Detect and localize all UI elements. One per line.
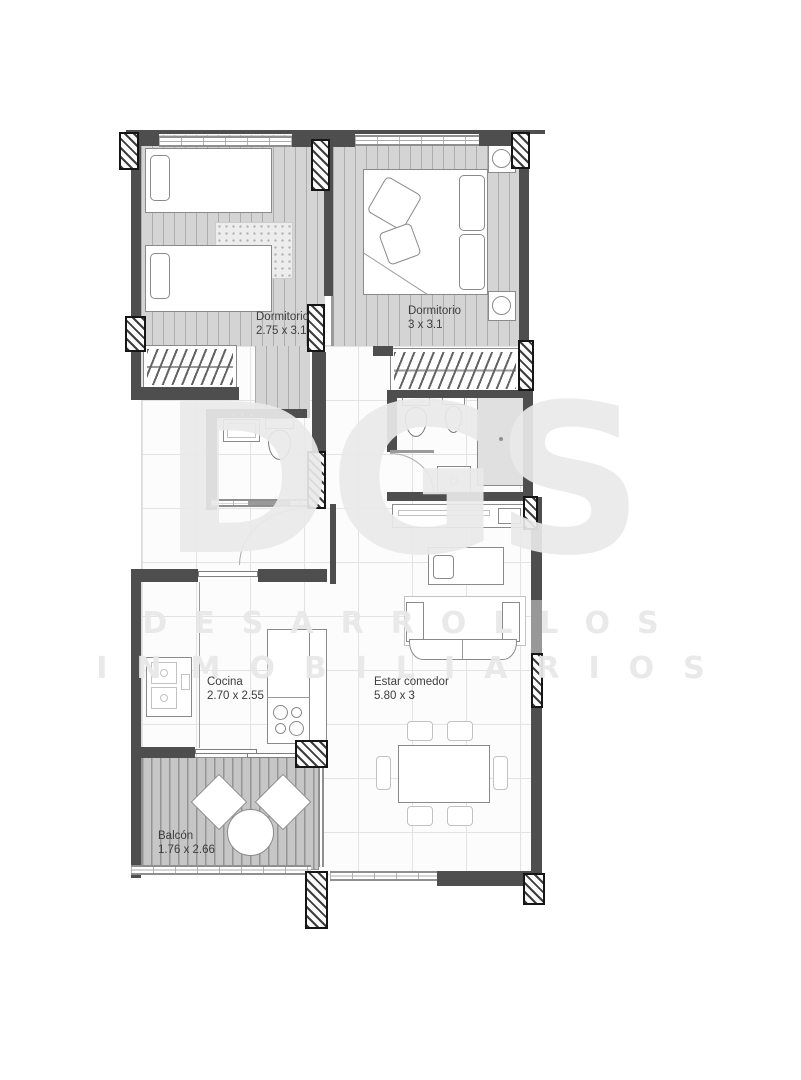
sofa-seat [409,639,517,660]
counter-divider-line [267,697,310,698]
column [523,873,545,905]
kitchen-faucet [181,674,190,690]
toilet-tank [265,418,294,429]
room-dimensions: 3 x 3.1 [408,318,461,332]
closet-hanging-clothes [147,349,233,385]
room-label-living: Estar comedor 5.80 x 3 [374,675,449,703]
window-bedroom-2 [355,135,479,146]
wall-hall-stub [330,504,336,584]
faucet-dots [229,412,255,418]
room-name: Cocina [207,675,264,689]
dining-chair [447,721,473,741]
column [518,340,534,391]
wall-bathroom-2-top [387,390,523,398]
room-label-balcony: Balcón 1.76 x 2.66 [158,829,215,857]
column [307,304,325,352]
sofa-armrest [502,602,520,642]
room-dimensions: 1.76 x 2.66 [158,843,215,857]
closet-bedroom-1 [143,345,237,389]
sliding-door-panel-2 [247,753,297,758]
dining-chair [376,756,391,790]
entry-door-segment [531,600,542,655]
shower-stall [477,397,525,486]
sink-drain [160,669,168,677]
room-label-bedroom-2: Dormitorio 3 x 3.1 [408,304,461,332]
balcony-railing [131,865,311,875]
wall-left-balcony [131,747,141,878]
sink-basin [227,423,256,438]
cabinet-shelf-line [398,510,490,516]
pillow [459,175,485,231]
dining-chair [407,721,433,741]
dining-chair [493,756,508,790]
room-dimensions: 2.75 x 3.1 [256,324,309,338]
wall-bottom-thick [437,871,532,886]
pillow [459,234,485,290]
column [531,653,543,708]
column [511,132,530,169]
wall-closet-bottom [131,387,239,400]
room-label-bedroom-1: Dormitorio 2.75 x 3.1 [256,310,309,338]
closet-bedroom-2 [390,348,520,393]
column [305,871,328,929]
sink-drain [160,694,168,702]
dining-chair [407,806,433,826]
column [523,496,538,530]
wall-balcony-divider-a [141,747,195,758]
closet-hanging-clothes [394,352,516,389]
balcony-living-glass [318,763,324,867]
wall-bathroom-1-left [206,409,217,510]
room-name: Dormitorio [408,304,461,318]
column [307,451,326,509]
lamp [492,149,511,168]
wall-corridor-nub [373,346,393,356]
balcony-round-table [227,809,274,856]
dining-table [398,745,490,803]
bedroom-1-nook-floor [255,346,310,418]
shower-bench [248,501,290,505]
dining-chair [447,806,473,826]
room-dimensions: 2.70 x 2.55 [207,689,264,703]
room-name: Dormitorio [256,310,309,324]
wall-kitchen-top-b [258,569,327,582]
wall-bathroom-2-bottom [387,492,531,501]
shower-drain [499,437,503,441]
cabinet-box [498,508,521,524]
column [119,132,139,170]
window-bedroom-1 [159,136,292,147]
pillow [150,155,170,201]
door-leaf-kitchen [198,571,258,577]
sofa-seat-divider [462,640,463,659]
room-dimensions: 5.80 x 3 [374,689,449,703]
room-name: Balcón [158,829,215,843]
wall-left-kitchen [131,569,141,759]
desk-chair [433,555,454,579]
wall-bathroom-2-left [387,392,397,452]
room-label-kitchen: Cocina 2.70 x 2.55 [207,675,264,703]
floor-plan-image: Dormitorio 2.75 x 3.1 Dormitorio 3 x 3.1… [0,0,801,1080]
wall-right-bathroom-2 [523,390,533,497]
wall-bathroom-1-top [206,409,307,418]
window-bottom-living [330,871,437,881]
room-name: Estar comedor [374,675,449,689]
lamp [492,296,511,315]
kitchen-counter-edge [199,582,200,748]
column [311,139,330,191]
column [125,316,146,352]
sofa-armrest [406,602,424,642]
wall-divider-lower [312,352,326,452]
stove-burner [275,723,286,734]
door-leaf-bedroom-2 [331,296,334,346]
wall-kitchen-top-a [131,569,198,582]
pillow [150,253,170,299]
column [295,740,328,768]
stove-burner [289,721,304,736]
stove-burner [291,707,302,718]
stove-burner [273,705,288,720]
vanity-faucet [450,477,458,485]
